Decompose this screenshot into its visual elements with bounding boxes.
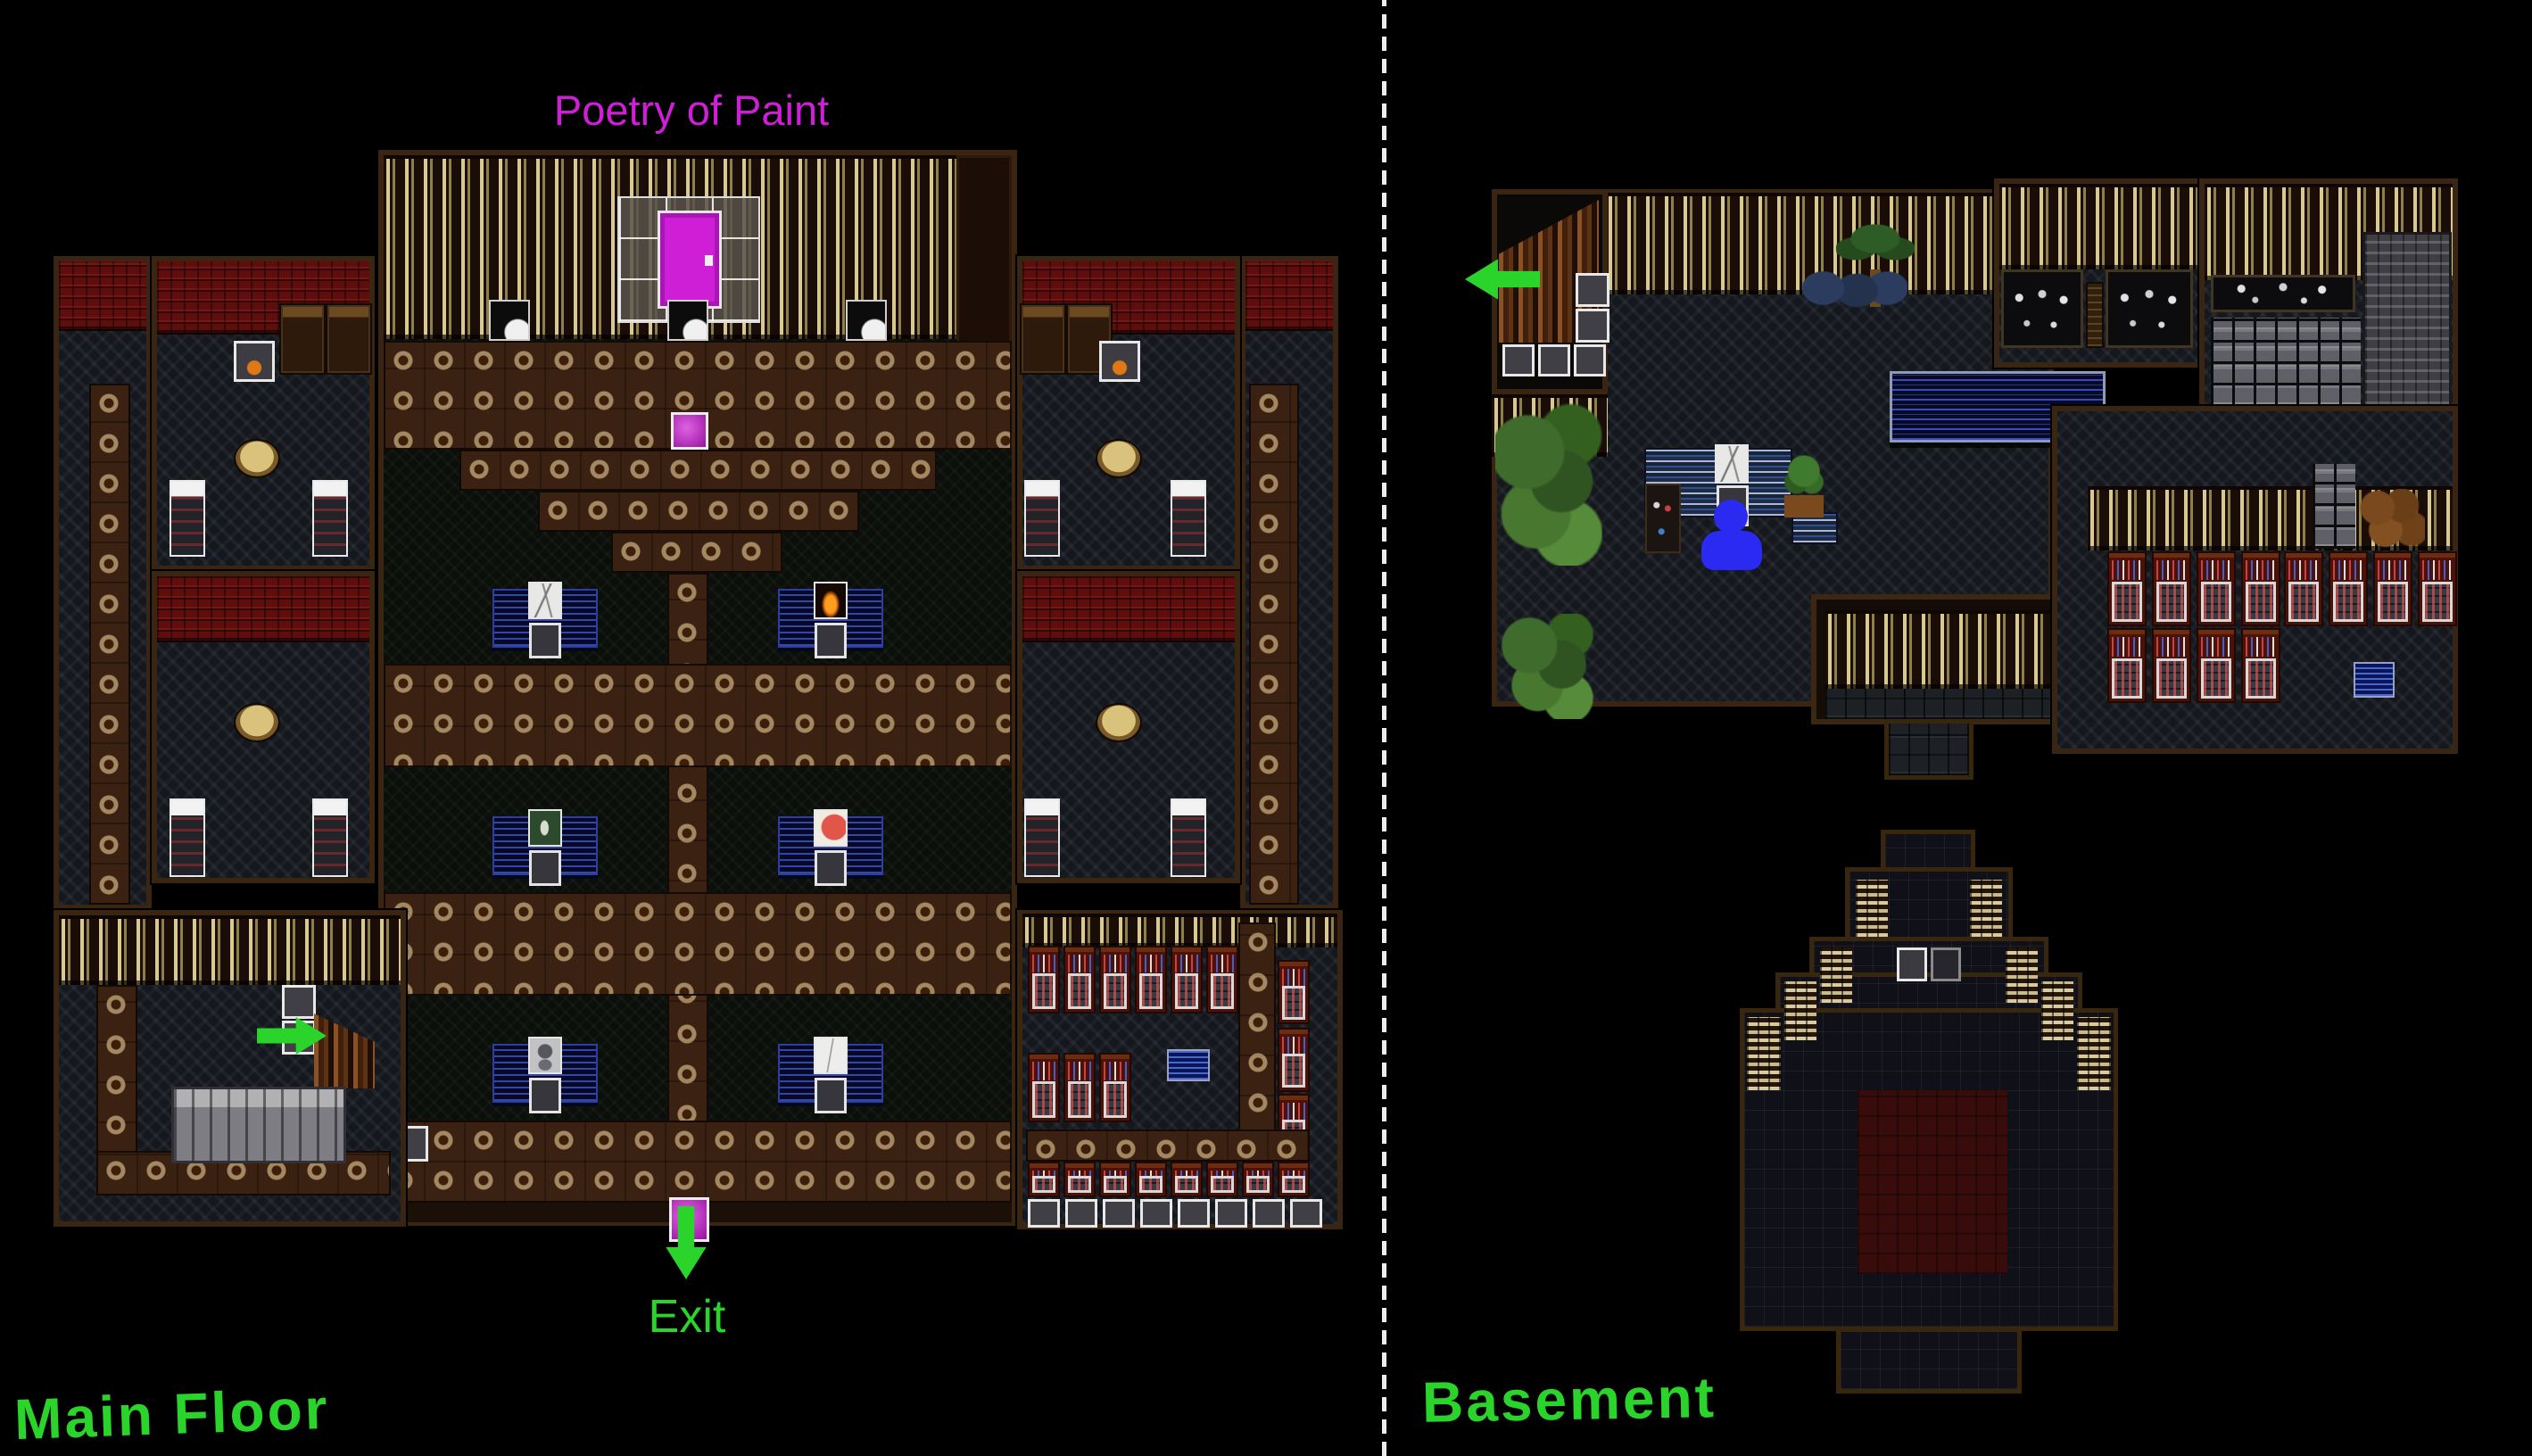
wine-rack: [2241, 628, 2280, 703]
wine-rack: [1278, 1028, 1310, 1092]
stone-hearth: [2362, 232, 2452, 407]
wine-rack: [2197, 551, 2236, 626]
wall-painting: [489, 300, 530, 341]
potted-plant-icon: [1784, 453, 1824, 517]
map-divider: [1382, 0, 1386, 1456]
bed: [1024, 798, 1060, 877]
corridor-wall: [59, 261, 146, 331]
cabinet: [279, 303, 326, 375]
wine-rack: [2107, 551, 2147, 626]
brick-wall: [1970, 880, 2002, 937]
display-tile: [1576, 309, 1609, 343]
brick-wall: [1820, 947, 1852, 1003]
wine-rack: [1135, 1162, 1167, 1197]
cabinet: [326, 303, 372, 375]
room-carpet: [96, 985, 137, 1163]
brick-wall: [1784, 981, 1816, 1040]
wine-rack: [1278, 1162, 1310, 1197]
crate-tile: [1103, 1199, 1135, 1228]
bed: [170, 798, 205, 877]
crate-tile: [1574, 344, 1606, 376]
painting-grey-portrait: [528, 1037, 562, 1074]
kitchen-counter: [2001, 269, 2083, 348]
brick-wall: [1747, 1017, 1781, 1090]
wine-rack: [2329, 551, 2368, 626]
cabinet: [1020, 303, 1066, 375]
hall-carpet: [459, 450, 937, 491]
exhibit-pedestal: [529, 623, 561, 658]
basement-label: Basement: [1421, 1364, 1717, 1435]
chamber-tile-white: [1897, 947, 1927, 981]
round-table: [234, 439, 280, 478]
blue-person-marker-icon: [1701, 531, 1762, 570]
hall-carpet: [611, 532, 782, 573]
room-wall: [1022, 576, 1235, 642]
bed: [312, 480, 348, 557]
wine-rack: [1028, 946, 1060, 1013]
magenta-floor-tile-icon: [671, 412, 708, 450]
main-floor-label: Main Floor: [13, 1376, 331, 1452]
crate-tile: [1290, 1199, 1322, 1228]
crate-tile: [1538, 344, 1570, 376]
wall-painting: [846, 300, 887, 341]
wine-rack: [1206, 946, 1238, 1013]
wine-rack: [1171, 946, 1203, 1013]
room-wall: [59, 915, 401, 985]
room-carpet: [1026, 1129, 1310, 1162]
wine-rack: [1171, 1162, 1203, 1197]
wine-rack: [1063, 1162, 1096, 1197]
wine-rack: [1135, 946, 1167, 1013]
tree-cluster: [1499, 614, 1601, 719]
blue-screen: [1167, 1049, 1210, 1081]
crate-tile: [1502, 344, 1535, 376]
corridor-carpet: [89, 384, 130, 905]
wine-rack: [2107, 628, 2147, 703]
gallery-title: Poetry of Paint: [482, 86, 901, 135]
wine-rack: [1063, 946, 1096, 1013]
round-table: [234, 703, 280, 742]
stage-passage: [1884, 719, 1973, 780]
exit-label: Exit: [607, 1290, 767, 1344]
round-table: [1096, 703, 1142, 742]
painting-flame: [814, 582, 848, 619]
blue-person-marker-icon: [1714, 500, 1748, 534]
painting-sketch: [528, 582, 562, 619]
wine-rack: [2152, 628, 2191, 703]
blue-table: [2354, 662, 2395, 698]
bed: [170, 480, 205, 557]
brick-wall: [1856, 880, 1888, 937]
crate-stacks: [2313, 464, 2355, 549]
wine-rack: [2418, 551, 2457, 626]
wine-rack: [2373, 551, 2412, 626]
tree-cluster: [1495, 403, 1602, 566]
crate-tile: [1178, 1199, 1210, 1228]
crate-tile: [1065, 1199, 1097, 1228]
wine-rack: [1028, 1162, 1060, 1197]
hall-carpet: [384, 892, 1012, 996]
wall-painting: [667, 300, 708, 341]
item-tile: [234, 341, 275, 382]
item-tile: [1099, 341, 1140, 382]
round-table: [1096, 439, 1142, 478]
hall-carpet: [538, 491, 859, 532]
crate-stacks: [2211, 318, 2361, 407]
bed: [1024, 480, 1060, 557]
wine-rack: [1099, 946, 1131, 1013]
map-guide-image: Poetry of Paint: [0, 0, 2532, 1456]
bed: [312, 798, 348, 877]
brick-wall: [2041, 981, 2073, 1040]
red-carpet-square: [1858, 1090, 2007, 1274]
crate-tile: [1215, 1199, 1247, 1228]
room-wall: [1999, 184, 2198, 269]
chamber-tile-grey: [1931, 947, 1961, 981]
brick-wall: [2006, 947, 2038, 1003]
exhibit-pedestal: [815, 1078, 847, 1113]
stage-wall: [1825, 610, 2057, 689]
wine-rack: [2284, 551, 2323, 626]
painting-red-circle: [814, 809, 848, 847]
kitchen-counter: [2106, 269, 2193, 348]
display-tile: [1576, 273, 1609, 307]
work-bench: [171, 1087, 346, 1163]
magenta-door-icon: [658, 211, 722, 309]
wine-rack: [1063, 1053, 1096, 1122]
bushes: [1795, 266, 1907, 310]
dish-shelf: [2211, 275, 2355, 312]
dark-chamber-passage: [1836, 1328, 2022, 1394]
corridor-carpet: [1249, 384, 1299, 905]
crate-tile: [1140, 1199, 1172, 1228]
barrels-icon: [2357, 489, 2425, 548]
exhibit-pedestal: [815, 623, 847, 658]
bed: [1171, 480, 1206, 557]
bed: [1171, 798, 1206, 877]
hall-carpet: [384, 664, 1012, 767]
wine-rack: [1099, 1053, 1131, 1122]
wine-rack: [2241, 551, 2280, 626]
wine-rack: [2197, 628, 2236, 703]
painting-faint-sketch: [814, 1037, 848, 1074]
room-wall: [1022, 914, 1337, 947]
shelf: [1645, 484, 1681, 553]
exhibit-pedestal: [815, 850, 847, 886]
wine-rack: [1099, 1162, 1131, 1197]
brick-wall: [2077, 1017, 2111, 1090]
wine-rack: [1242, 1162, 1274, 1197]
painting-sketch: [1715, 444, 1749, 484]
stage-floor: [1825, 689, 2057, 719]
exhibit-pedestal: [529, 850, 561, 886]
corridor-wall: [1245, 261, 1333, 331]
wine-rack: [1206, 1162, 1238, 1197]
crate-tile: [1253, 1199, 1285, 1228]
display-tile: [282, 985, 316, 1019]
wine-rack: [1028, 1053, 1060, 1122]
room-carpet: [1238, 922, 1276, 1137]
wine-rack: [1278, 960, 1310, 1024]
room-wall: [157, 576, 369, 642]
painting-green-figure: [528, 809, 562, 847]
wine-rack: [2152, 551, 2191, 626]
cabinet: [2086, 282, 2104, 348]
hall-carpet: [384, 1121, 1012, 1203]
exhibit-pedestal: [529, 1078, 561, 1113]
crate-tile: [1028, 1199, 1060, 1228]
